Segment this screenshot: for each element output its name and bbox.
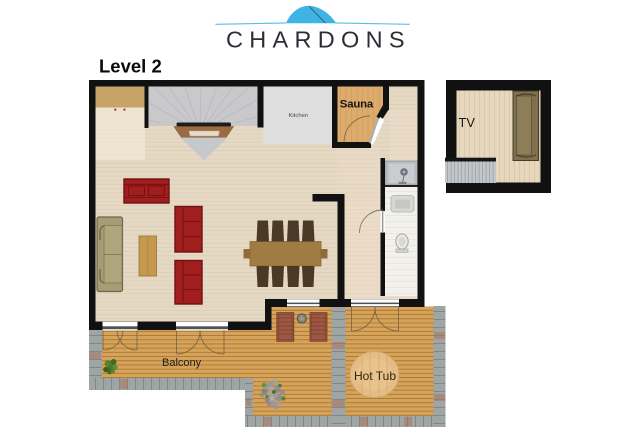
svg-text:Level 2: Level 2	[99, 56, 162, 77]
svg-text:CHARDONS: CHARDONS	[226, 27, 411, 53]
svg-text:Kitchen: Kitchen	[289, 113, 309, 119]
svg-text:Balcony: Balcony	[162, 357, 202, 369]
svg-text:TV: TV	[459, 115, 476, 130]
svg-text:Sauna: Sauna	[340, 99, 374, 111]
svg-text:Hot Tub: Hot Tub	[354, 369, 396, 383]
